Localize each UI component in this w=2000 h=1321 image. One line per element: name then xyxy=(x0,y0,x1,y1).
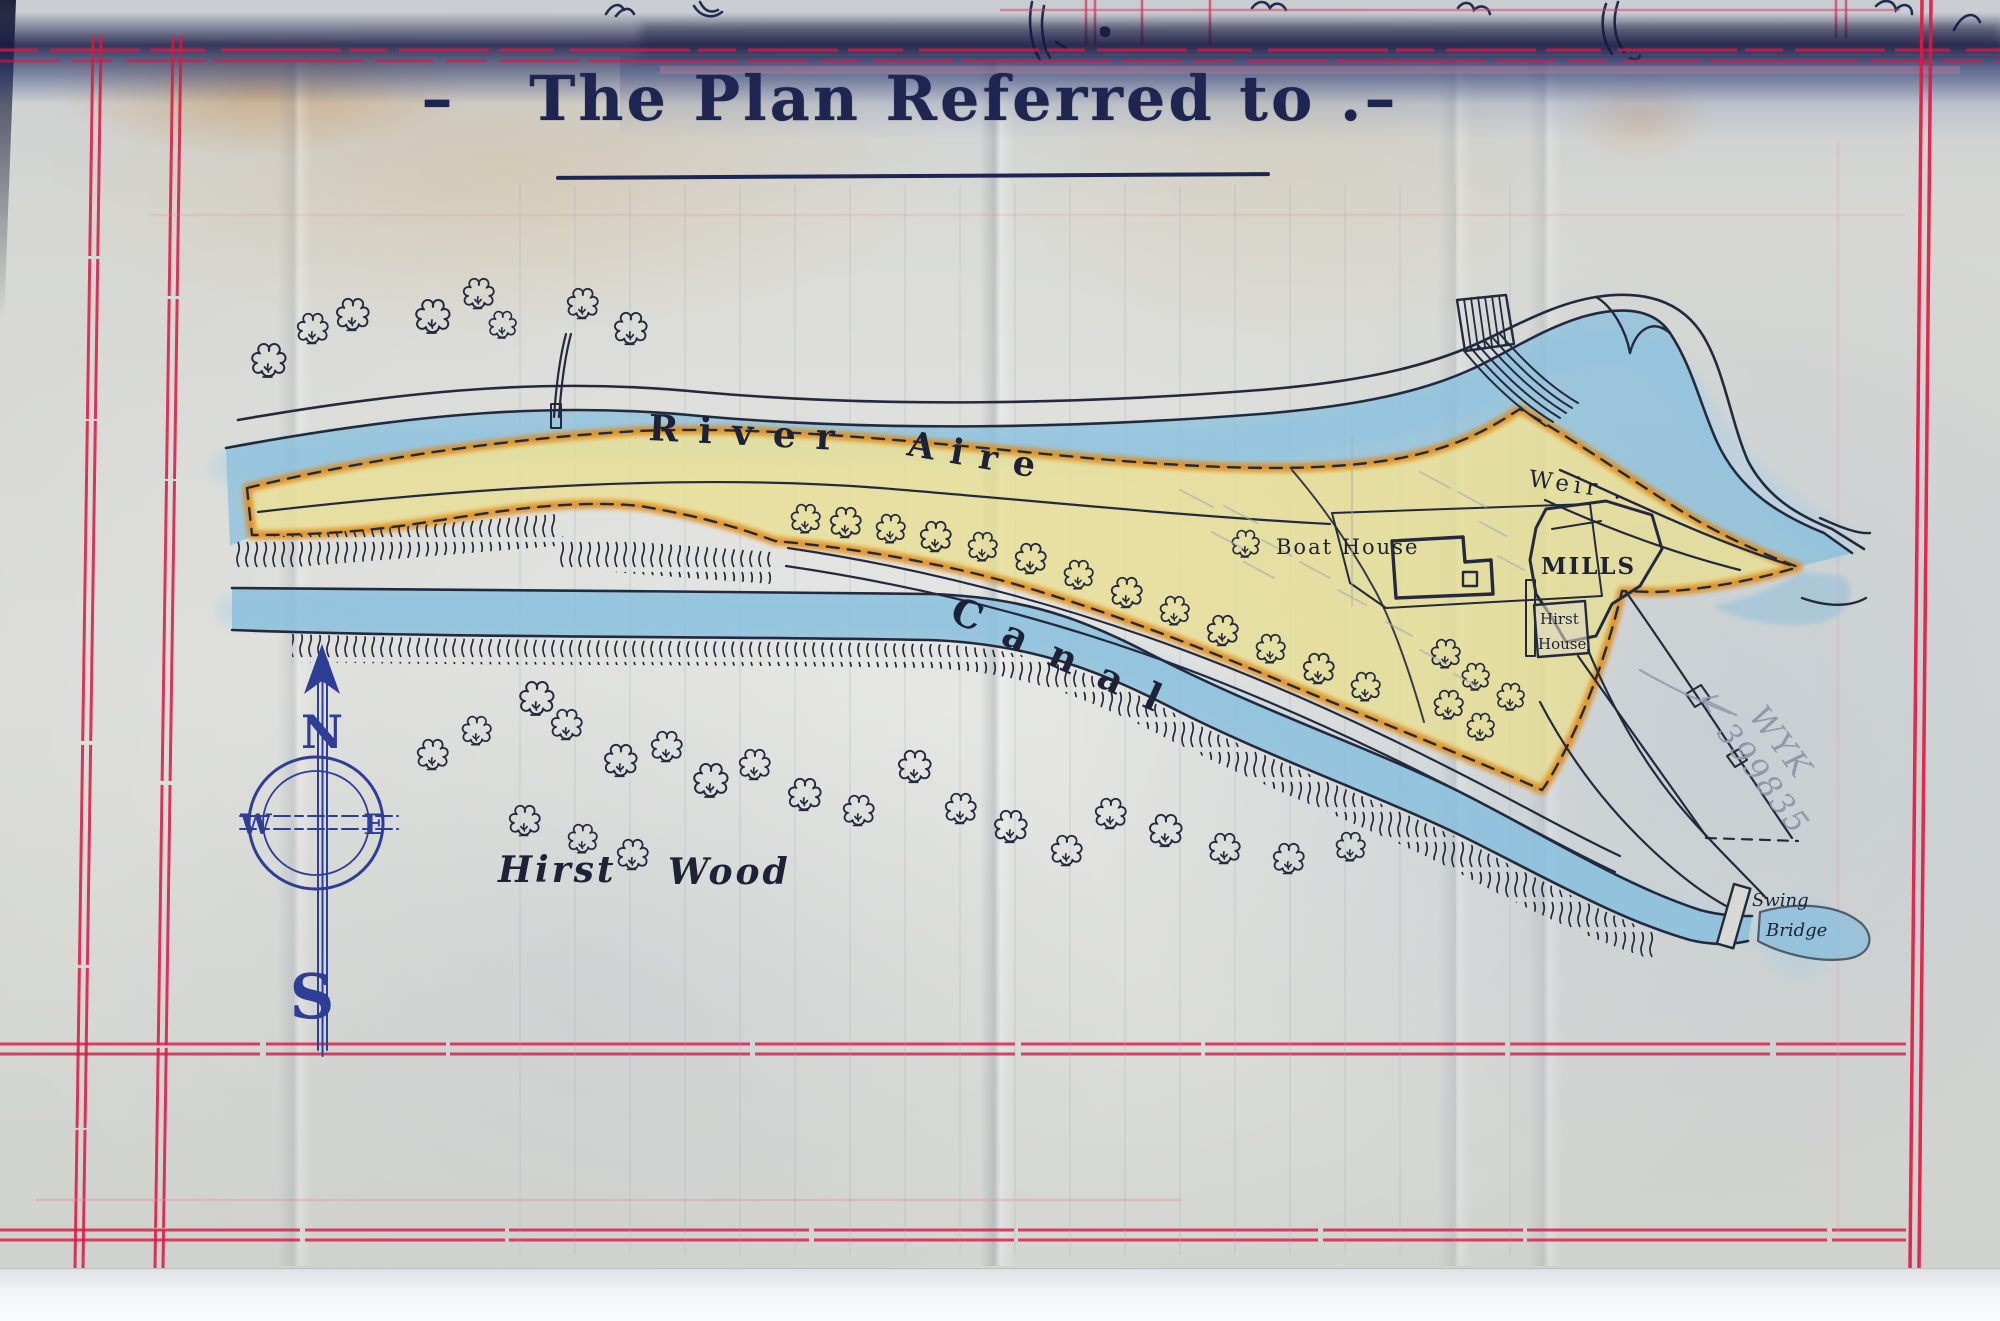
tree-icon xyxy=(618,840,648,870)
tree-icon xyxy=(1096,799,1126,829)
ledger-bleedthrough-columns xyxy=(520,185,1510,1255)
tree-icon xyxy=(844,796,874,826)
tree-icon xyxy=(605,745,637,776)
compass-east-label: E xyxy=(363,808,384,841)
boat-house-label: Boat House xyxy=(1276,535,1419,559)
tree-icon xyxy=(337,299,369,330)
mills-label: MILLS xyxy=(1541,553,1636,580)
scanner-background xyxy=(0,1268,2000,1321)
tree-icon xyxy=(510,806,540,836)
hirst-house-label-line1: Hirst xyxy=(1540,610,1579,628)
tree-icon xyxy=(552,710,582,740)
tree-icon xyxy=(252,344,285,377)
tree-icon xyxy=(298,314,328,344)
tree-icon xyxy=(568,289,598,319)
tree-icon xyxy=(418,740,448,770)
tree-icon xyxy=(1052,836,1082,866)
tree-icon xyxy=(899,751,931,782)
tree-icon xyxy=(694,764,727,797)
tree-icon xyxy=(652,732,682,762)
tree-icon xyxy=(1274,844,1304,874)
tree-icon xyxy=(520,682,553,715)
tree-icon xyxy=(995,811,1027,842)
swing-bridge-label-line2: Bridge xyxy=(1765,920,1827,941)
hirst-house-label-line2: House xyxy=(1538,635,1586,653)
hirst-wood-label-word2: Wood xyxy=(668,851,791,893)
tree-icon xyxy=(489,312,516,338)
tree-icon xyxy=(1337,833,1365,861)
tree-icon xyxy=(464,279,494,309)
tree-icon xyxy=(789,779,821,810)
compass-south-label: S xyxy=(290,960,335,1033)
tree-icon xyxy=(740,750,770,780)
tree-icon xyxy=(463,717,491,745)
swing-bridge-label-line1: Swing xyxy=(1752,890,1809,911)
tree-icon xyxy=(416,300,449,333)
compass-west-label: W xyxy=(239,808,272,841)
scanned-plan-page: River Aire Canal Hirst Wood Weir . MILLS… xyxy=(0,0,2000,1321)
plan-drawing: River Aire Canal Hirst Wood Weir . MILLS… xyxy=(0,0,2000,1321)
plan-title: – The Plan Referred to .– xyxy=(400,62,1420,135)
compass-north-label: N xyxy=(301,705,343,759)
tree-icon xyxy=(1150,815,1182,846)
hirst-wood-label-word1: Hirst xyxy=(497,849,617,891)
